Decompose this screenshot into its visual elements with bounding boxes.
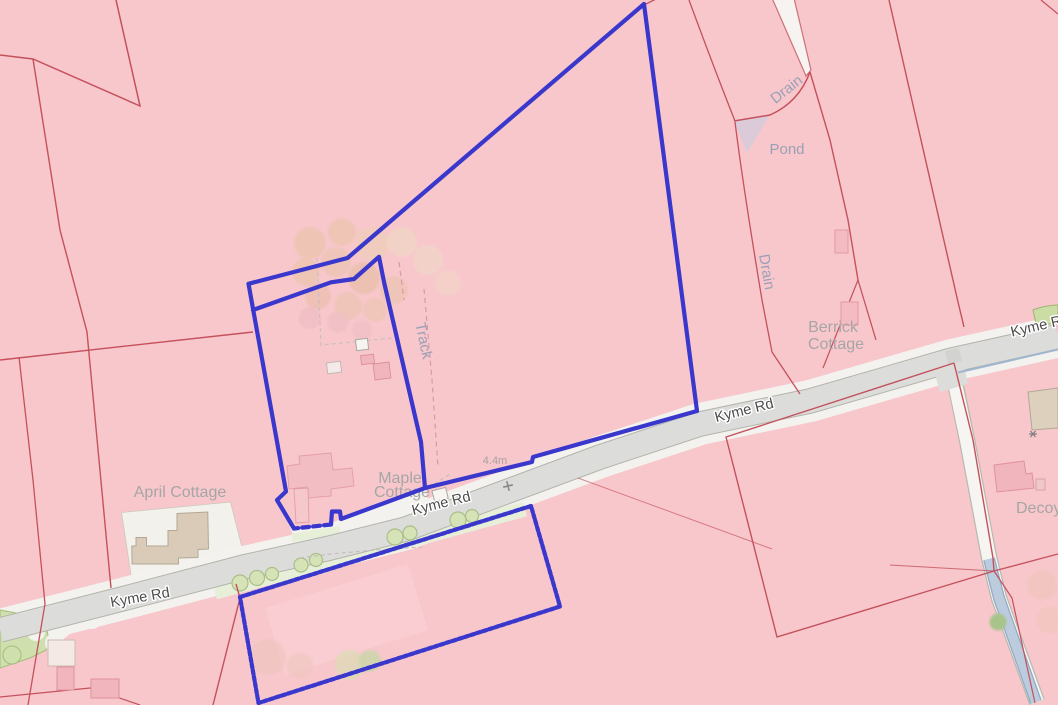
svg-text:April Cottage: April Cottage (134, 484, 227, 501)
svg-text:4.4m: 4.4m (483, 455, 507, 467)
svg-text:Decoy: Decoy (1016, 500, 1058, 517)
svg-text:Cottage: Cottage (808, 336, 864, 353)
svg-text:Pond: Pond (769, 141, 804, 158)
svg-text:Berrick: Berrick (808, 319, 859, 336)
